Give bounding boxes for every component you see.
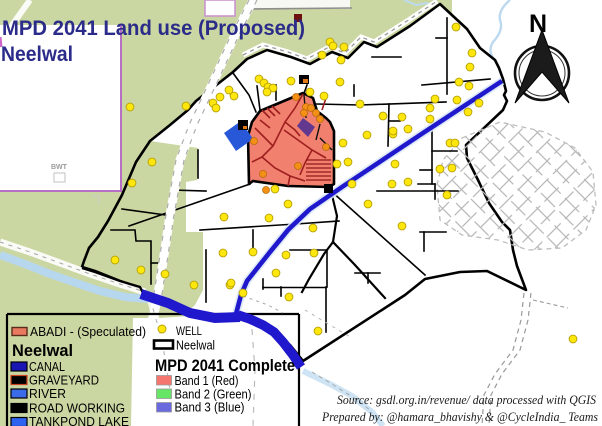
svg-text:RIVER: RIVER [29,387,66,401]
svg-text:Neelwal: Neelwal [176,338,215,353]
svg-text:Prepared by: @hamara_bhavishy: Prepared by: @hamara_bhavishy & @CycleIn… [321,409,598,424]
svg-text:ROAD WORKING: ROAD WORKING [29,402,125,416]
svg-text:N: N [529,10,547,38]
svg-text:WELL: WELL [176,326,202,338]
svg-text:Band 3 (Blue): Band 3 (Blue) [175,401,245,415]
svg-text:MPD 2041 Complete: MPD 2041 Complete [155,356,295,375]
svg-text:CANAL: CANAL [29,360,65,374]
svg-text:Neelwal: Neelwal [1,43,73,66]
svg-text:Source: gsdl.org.in/revenue/ d: Source: gsdl.org.in/revenue/ data proces… [337,392,596,407]
svg-text:Neelwal: Neelwal [12,341,73,360]
svg-text:Band 2 (Green): Band 2 (Green) [175,388,252,402]
svg-text:Band 1 (Red): Band 1 (Red) [175,374,239,388]
svg-text:GRAVEYARD: GRAVEYARD [29,374,99,388]
svg-text:MPD 2041 Land use (Proposed): MPD 2041 Land use (Proposed) [2,17,305,40]
svg-text:ABADI - (Speculated): ABADI - (Speculated) [30,324,146,339]
svg-text:TANKPOND LAKE: TANKPOND LAKE [29,415,129,426]
svg-text:BWT: BWT [51,164,68,171]
